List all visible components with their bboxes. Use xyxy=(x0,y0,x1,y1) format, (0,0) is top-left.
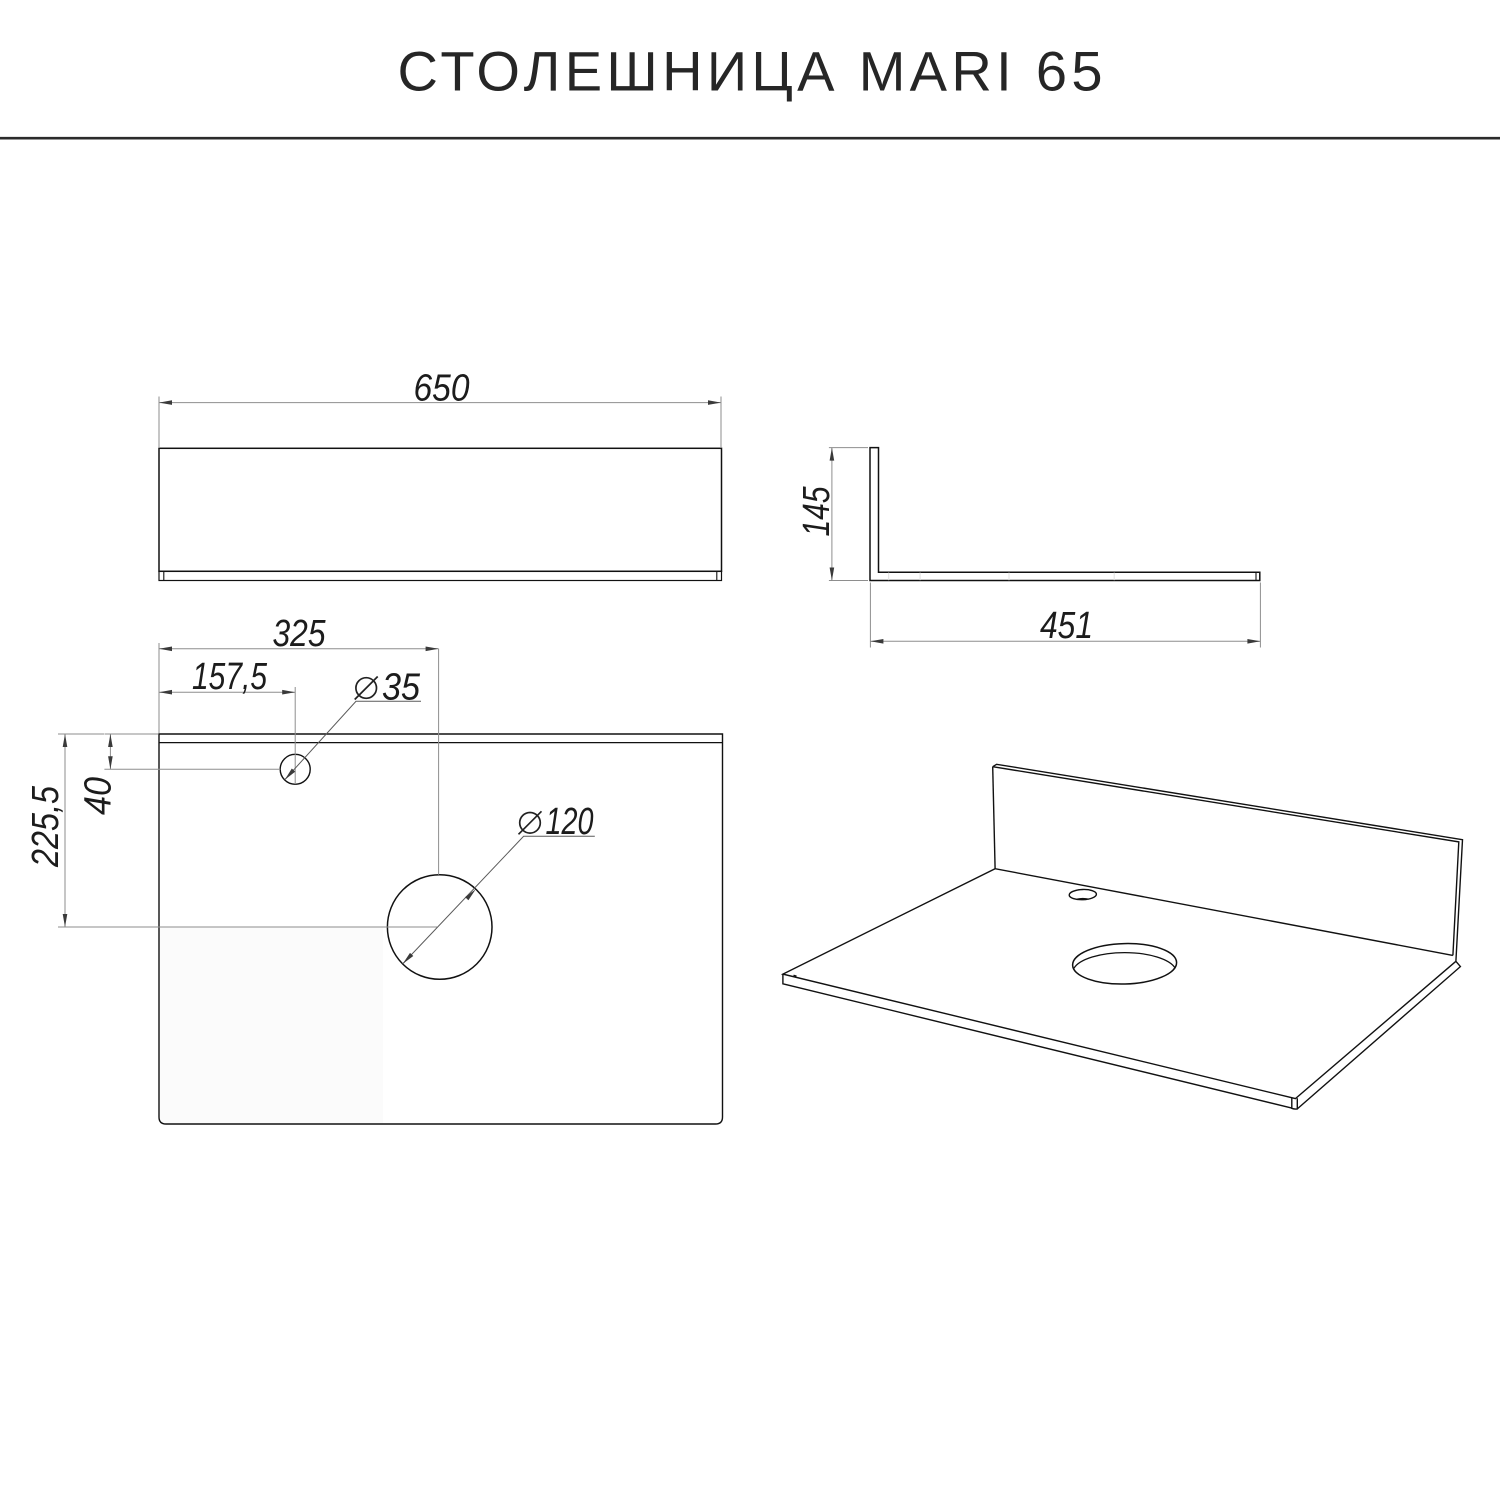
svg-text:СТОЛЕШНИЦА MARI 65: СТОЛЕШНИЦА MARI 65 xyxy=(398,40,1103,103)
svg-text:120: 120 xyxy=(546,801,594,843)
svg-text:325: 325 xyxy=(273,613,327,655)
svg-text:40: 40 xyxy=(78,777,120,815)
svg-text:35: 35 xyxy=(382,667,421,709)
svg-text:157,5: 157,5 xyxy=(192,656,268,698)
svg-text:225,5: 225,5 xyxy=(25,785,67,868)
svg-text:650: 650 xyxy=(414,368,470,410)
svg-text:451: 451 xyxy=(1040,605,1093,647)
svg-text:145: 145 xyxy=(796,486,838,537)
